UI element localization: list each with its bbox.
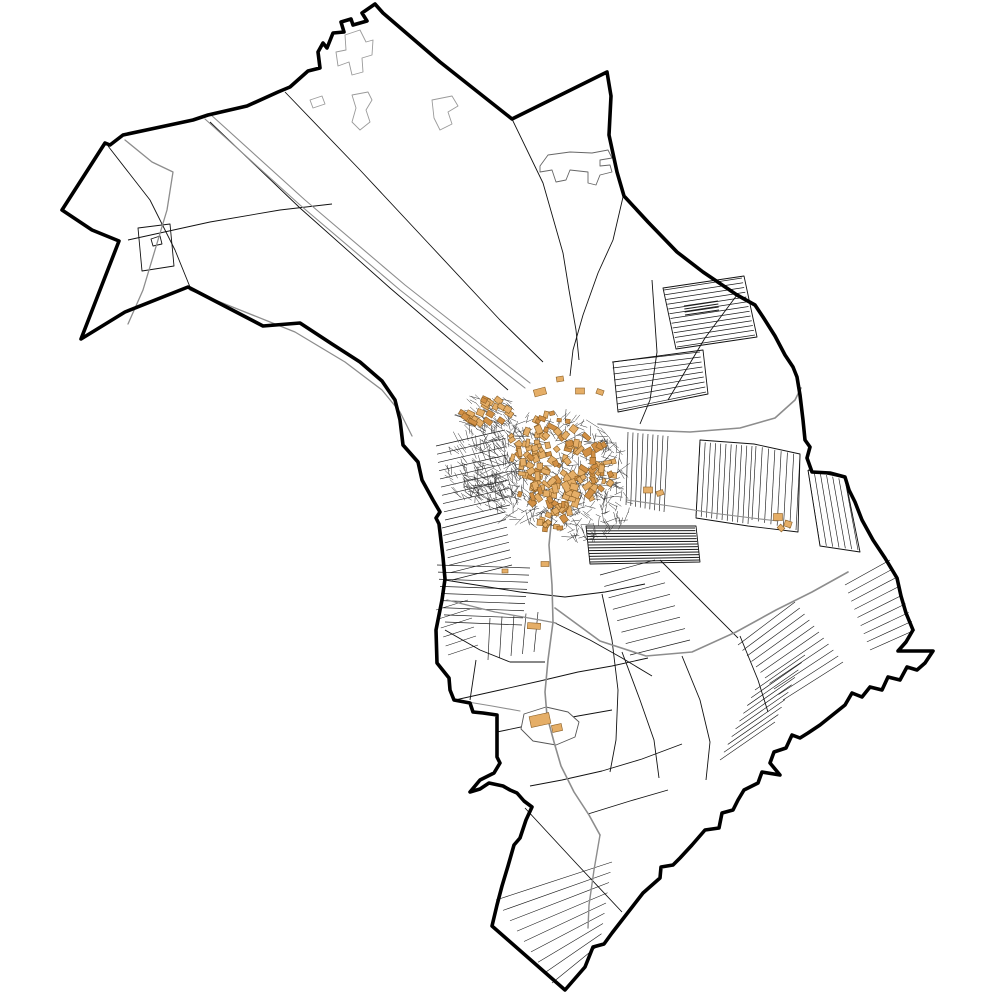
hatch-line bbox=[590, 560, 700, 562]
building-footprint bbox=[644, 487, 653, 493]
noise-line bbox=[506, 443, 515, 447]
noise-line bbox=[598, 517, 599, 527]
parcel-line bbox=[668, 295, 737, 400]
hatch-line bbox=[587, 539, 696, 540]
hatch-line bbox=[861, 604, 906, 626]
hatch-line bbox=[446, 636, 476, 646]
hatch-line bbox=[617, 606, 675, 621]
building-footprint bbox=[549, 411, 555, 416]
hatch-line bbox=[590, 557, 700, 559]
building-footprint bbox=[561, 501, 565, 508]
hatch-line bbox=[783, 452, 787, 527]
nature-shape bbox=[432, 96, 458, 130]
noise-line bbox=[499, 431, 505, 441]
noise-line bbox=[620, 472, 628, 476]
building-footprint bbox=[553, 446, 560, 453]
noise-line bbox=[590, 501, 595, 508]
building-footprint bbox=[557, 526, 563, 530]
noise-line bbox=[496, 425, 503, 430]
hatch-line bbox=[845, 480, 858, 550]
noise-line bbox=[566, 521, 567, 527]
hatch-line bbox=[659, 436, 663, 512]
noise-line bbox=[510, 479, 517, 487]
parcel-line bbox=[613, 350, 708, 412]
hatch-line bbox=[645, 434, 648, 509]
parcel-line bbox=[682, 656, 710, 780]
hatch-line bbox=[534, 612, 538, 652]
hatch-line bbox=[779, 656, 839, 695]
building-footprint bbox=[535, 472, 540, 481]
building-footprint bbox=[598, 465, 604, 473]
noise-line bbox=[509, 510, 518, 516]
hatch-line bbox=[589, 555, 699, 557]
hatch-line bbox=[604, 571, 660, 586]
hatch-line bbox=[724, 715, 778, 753]
hatch-line bbox=[446, 535, 508, 551]
noise-line bbox=[501, 515, 511, 522]
hatch-line bbox=[503, 872, 611, 910]
parcel-line bbox=[445, 630, 545, 662]
noise-line bbox=[609, 441, 619, 448]
hatch-line bbox=[626, 629, 685, 644]
hatch-line bbox=[732, 445, 736, 522]
hatch-line bbox=[614, 367, 702, 380]
building-footprint bbox=[602, 478, 606, 483]
noise-line bbox=[619, 457, 622, 464]
hatch-line bbox=[510, 883, 609, 921]
hatch-line bbox=[449, 550, 510, 565]
building-footprint bbox=[520, 458, 527, 466]
hatch-line bbox=[738, 445, 742, 522]
noise-line bbox=[484, 435, 488, 440]
hatch-line bbox=[752, 446, 756, 520]
noise-line bbox=[592, 433, 595, 442]
building-footprint bbox=[590, 457, 596, 464]
hatch-line bbox=[448, 542, 509, 557]
noise-line bbox=[615, 492, 621, 495]
parcel-line bbox=[108, 146, 190, 287]
hatch-line bbox=[443, 520, 506, 536]
hatch-line bbox=[511, 615, 514, 656]
hatch-line bbox=[614, 362, 702, 374]
noise-line bbox=[628, 508, 629, 513]
hatch-line bbox=[765, 638, 824, 678]
noise-line bbox=[595, 433, 596, 440]
hatch-line bbox=[827, 475, 840, 548]
hatch-line bbox=[743, 446, 747, 524]
map-canvas bbox=[0, 0, 1000, 1000]
noise-line bbox=[502, 441, 505, 447]
parcel-line bbox=[602, 594, 618, 772]
noise-line bbox=[620, 489, 622, 501]
noise-line bbox=[574, 460, 579, 465]
noise-line bbox=[602, 531, 607, 539]
parcel-line bbox=[530, 744, 682, 786]
hatch-line bbox=[673, 316, 751, 328]
noise-line bbox=[561, 537, 574, 538]
noise-line bbox=[597, 429, 605, 434]
municipal-boundary bbox=[62, 4, 933, 990]
hatch-line bbox=[674, 321, 752, 333]
noise-line bbox=[458, 433, 464, 442]
hatch-line bbox=[770, 644, 829, 684]
hatch-line bbox=[588, 547, 698, 548]
noise-line bbox=[530, 523, 536, 528]
hatch-line bbox=[833, 477, 846, 549]
cadastral-map-svg bbox=[0, 0, 1000, 1000]
hatch-line bbox=[854, 586, 899, 609]
hatch-line bbox=[588, 541, 697, 542]
road-path bbox=[210, 114, 530, 383]
noise-line bbox=[609, 504, 616, 510]
noise-line bbox=[453, 432, 459, 443]
noise-line bbox=[571, 520, 580, 521]
noise-line bbox=[514, 421, 526, 425]
noise-line bbox=[451, 465, 452, 475]
noise-line bbox=[477, 506, 484, 512]
noise-line bbox=[587, 509, 592, 513]
road-path bbox=[627, 500, 778, 521]
noise-line bbox=[498, 515, 508, 524]
hatch-line bbox=[621, 617, 680, 632]
noise-line bbox=[476, 435, 477, 447]
hatch-line bbox=[743, 677, 795, 713]
hatch-line bbox=[728, 707, 782, 744]
noise-line bbox=[614, 445, 623, 455]
building-footprint bbox=[576, 388, 585, 394]
building-footprint bbox=[486, 410, 495, 418]
nature-shape bbox=[336, 30, 373, 75]
noise-line bbox=[581, 525, 584, 533]
noise-line bbox=[568, 529, 575, 532]
hatch-line bbox=[441, 594, 526, 597]
hatch-line bbox=[517, 893, 608, 931]
noise-line bbox=[596, 493, 597, 501]
road-path bbox=[588, 835, 600, 928]
building-footprint bbox=[545, 442, 551, 449]
building-footprint bbox=[534, 440, 539, 444]
noise-line bbox=[480, 447, 485, 460]
nature-outlines-layer bbox=[310, 30, 612, 745]
hatch-line bbox=[701, 442, 705, 516]
noise-line bbox=[614, 512, 617, 522]
hatch-line bbox=[867, 621, 912, 642]
roads-layer bbox=[125, 114, 848, 928]
hatch-line bbox=[615, 372, 703, 386]
hatch-line bbox=[438, 609, 470, 619]
hatch-line bbox=[664, 278, 742, 290]
building-footprint bbox=[543, 490, 550, 497]
hatch-line bbox=[677, 335, 755, 347]
noise-line bbox=[451, 487, 460, 497]
nature-shape bbox=[540, 150, 612, 185]
hatch-line bbox=[438, 572, 529, 575]
hatch-line bbox=[751, 662, 802, 697]
noise-line bbox=[494, 468, 501, 472]
hatch-line bbox=[675, 326, 753, 338]
hatch-line bbox=[743, 608, 800, 651]
building-footprint bbox=[596, 388, 604, 395]
municipal-boundary-layer bbox=[62, 4, 933, 990]
hatch-line bbox=[676, 330, 754, 342]
noise-line bbox=[589, 519, 591, 524]
parcel-line bbox=[470, 660, 476, 700]
parcel-line bbox=[285, 92, 543, 362]
building-footprint bbox=[541, 562, 549, 567]
hatch-line bbox=[720, 722, 775, 760]
noise-line bbox=[450, 480, 456, 485]
hatch-line bbox=[845, 560, 890, 585]
hatch-line bbox=[790, 454, 794, 529]
hatch-line bbox=[442, 512, 505, 528]
road-path bbox=[205, 119, 525, 388]
building-footprint bbox=[502, 569, 508, 573]
building-footprint bbox=[784, 520, 793, 528]
building-footprint bbox=[573, 439, 579, 447]
noise-line bbox=[624, 512, 628, 523]
noise-line bbox=[595, 436, 608, 437]
noise-line bbox=[615, 502, 621, 506]
noise-line bbox=[582, 529, 587, 540]
hatch-line bbox=[765, 449, 769, 523]
noise-line bbox=[605, 498, 612, 507]
noise-line bbox=[563, 412, 570, 420]
hatch-line bbox=[738, 602, 795, 645]
hatch-line bbox=[848, 569, 893, 593]
noise-line bbox=[601, 428, 610, 437]
hatch-line bbox=[814, 472, 826, 546]
building-footprint bbox=[537, 463, 543, 469]
parcel-line bbox=[660, 560, 738, 638]
noise-line bbox=[476, 496, 483, 500]
noise-line bbox=[598, 491, 604, 501]
hatch-line bbox=[636, 433, 639, 507]
noise-line bbox=[518, 508, 524, 511]
noise-line bbox=[521, 510, 527, 513]
noise-line bbox=[576, 528, 579, 538]
noise-line bbox=[572, 507, 579, 514]
building-footprint bbox=[656, 489, 664, 496]
building-footprint bbox=[544, 427, 549, 433]
hatch-line bbox=[613, 357, 701, 368]
hatch-line bbox=[712, 443, 716, 518]
hatch-line bbox=[631, 433, 633, 506]
building-footprint bbox=[518, 471, 526, 476]
noise-line bbox=[583, 496, 585, 508]
noise-line bbox=[579, 502, 585, 504]
noise-line bbox=[479, 474, 488, 480]
building-footprint bbox=[533, 387, 546, 397]
hatch-line bbox=[609, 583, 665, 598]
building-footprint bbox=[527, 623, 540, 630]
noise-line bbox=[487, 473, 493, 480]
hatch-line bbox=[717, 444, 721, 520]
building-footprint bbox=[557, 418, 562, 422]
hatch-line bbox=[761, 632, 820, 673]
noise-line bbox=[486, 465, 495, 466]
noise-line bbox=[466, 467, 468, 475]
hatch-line bbox=[747, 670, 798, 706]
hatch-line bbox=[727, 444, 731, 520]
building-footprint bbox=[565, 419, 570, 424]
parcel-line bbox=[210, 122, 508, 390]
building-footprint bbox=[537, 519, 543, 526]
hatch-line bbox=[587, 536, 696, 537]
noise-line bbox=[626, 502, 632, 504]
hatch-line bbox=[523, 614, 527, 655]
hatch-line bbox=[858, 595, 903, 618]
noise-line bbox=[488, 451, 492, 464]
hatch-line bbox=[589, 552, 699, 554]
hatch-line bbox=[524, 903, 606, 942]
noise-line bbox=[584, 513, 593, 520]
noise-line bbox=[561, 414, 566, 418]
nature-shape bbox=[310, 96, 325, 108]
hatch-line bbox=[626, 432, 628, 505]
building-footprint bbox=[510, 454, 516, 462]
hatch-line bbox=[672, 311, 750, 323]
noise-line bbox=[555, 499, 561, 501]
noise-line bbox=[496, 487, 508, 494]
building-footprint bbox=[774, 514, 783, 521]
hatch-line bbox=[864, 613, 909, 634]
noise-line bbox=[515, 515, 524, 525]
hatch-line bbox=[650, 435, 653, 510]
parcel-line bbox=[588, 790, 668, 814]
noise-line bbox=[462, 457, 467, 463]
hatch-line bbox=[771, 450, 775, 524]
hatch-line bbox=[783, 662, 843, 700]
road-path bbox=[190, 290, 412, 436]
hatch-line bbox=[722, 444, 726, 520]
noise-line bbox=[468, 444, 481, 451]
hatch-line bbox=[851, 578, 896, 602]
noise-line bbox=[616, 442, 617, 452]
noise-line bbox=[617, 463, 630, 472]
parcel-line bbox=[455, 658, 648, 700]
building-footprint bbox=[523, 427, 531, 436]
nature-shape bbox=[352, 92, 372, 130]
hatch-line bbox=[588, 544, 698, 545]
building-footprint bbox=[603, 460, 611, 465]
hatch-line bbox=[589, 549, 699, 550]
noise-line bbox=[570, 523, 576, 525]
building-footprint bbox=[526, 439, 530, 447]
building-footprint bbox=[582, 432, 591, 441]
noise-line bbox=[596, 514, 601, 516]
hatch-line bbox=[600, 560, 655, 575]
hatch-line bbox=[758, 447, 762, 521]
hatch-line bbox=[756, 626, 814, 667]
buildings-layer bbox=[458, 376, 792, 733]
building-footprint bbox=[517, 491, 522, 497]
hatch-line bbox=[732, 700, 785, 737]
hatch-line bbox=[752, 620, 810, 662]
noise-line bbox=[525, 412, 529, 418]
hatch-line bbox=[440, 586, 527, 589]
hatch-line bbox=[820, 473, 832, 546]
hatch-line bbox=[445, 622, 522, 625]
noise-line bbox=[602, 509, 604, 521]
noise-line bbox=[467, 399, 472, 404]
building-footprint bbox=[556, 376, 564, 382]
hatch-line bbox=[664, 436, 668, 512]
hatch-line bbox=[437, 565, 530, 568]
noise-line bbox=[580, 425, 587, 427]
noise-line bbox=[609, 437, 612, 443]
hatch-line bbox=[613, 594, 670, 609]
hatch-line bbox=[736, 692, 789, 729]
noise-line bbox=[623, 492, 628, 499]
strip-field-hatch-layer bbox=[436, 278, 915, 983]
noise-line bbox=[476, 403, 481, 409]
hatch-line bbox=[706, 443, 710, 518]
hatch-line bbox=[655, 435, 659, 510]
hatch-line bbox=[500, 617, 503, 659]
hatch-line bbox=[445, 527, 507, 543]
hatch-line bbox=[640, 434, 643, 508]
hatch-line bbox=[748, 446, 752, 524]
